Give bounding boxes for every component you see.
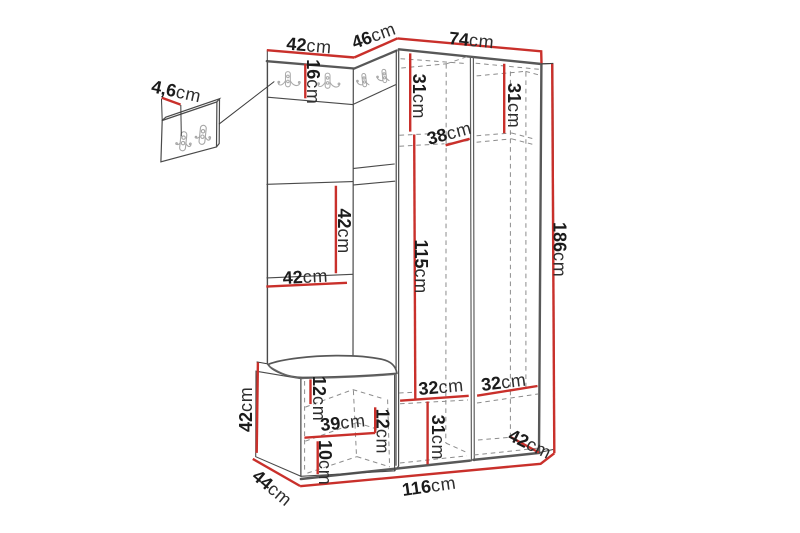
- svg-text:42cm: 42cm: [282, 266, 328, 288]
- svg-text:42cm: 42cm: [236, 387, 256, 432]
- svg-text:31cm: 31cm: [428, 415, 448, 460]
- svg-text:115cm: 115cm: [411, 240, 431, 294]
- svg-text:16cm: 16cm: [303, 59, 323, 104]
- svg-text:42cm: 42cm: [334, 209, 354, 254]
- svg-text:31cm: 31cm: [504, 83, 524, 128]
- svg-text:31cm: 31cm: [409, 74, 429, 119]
- svg-text:10cm: 10cm: [315, 440, 335, 485]
- svg-text:32cm: 32cm: [418, 375, 465, 399]
- svg-text:42cm: 42cm: [286, 34, 333, 58]
- svg-text:12cm: 12cm: [372, 409, 392, 454]
- svg-text:186cm: 186cm: [550, 222, 570, 277]
